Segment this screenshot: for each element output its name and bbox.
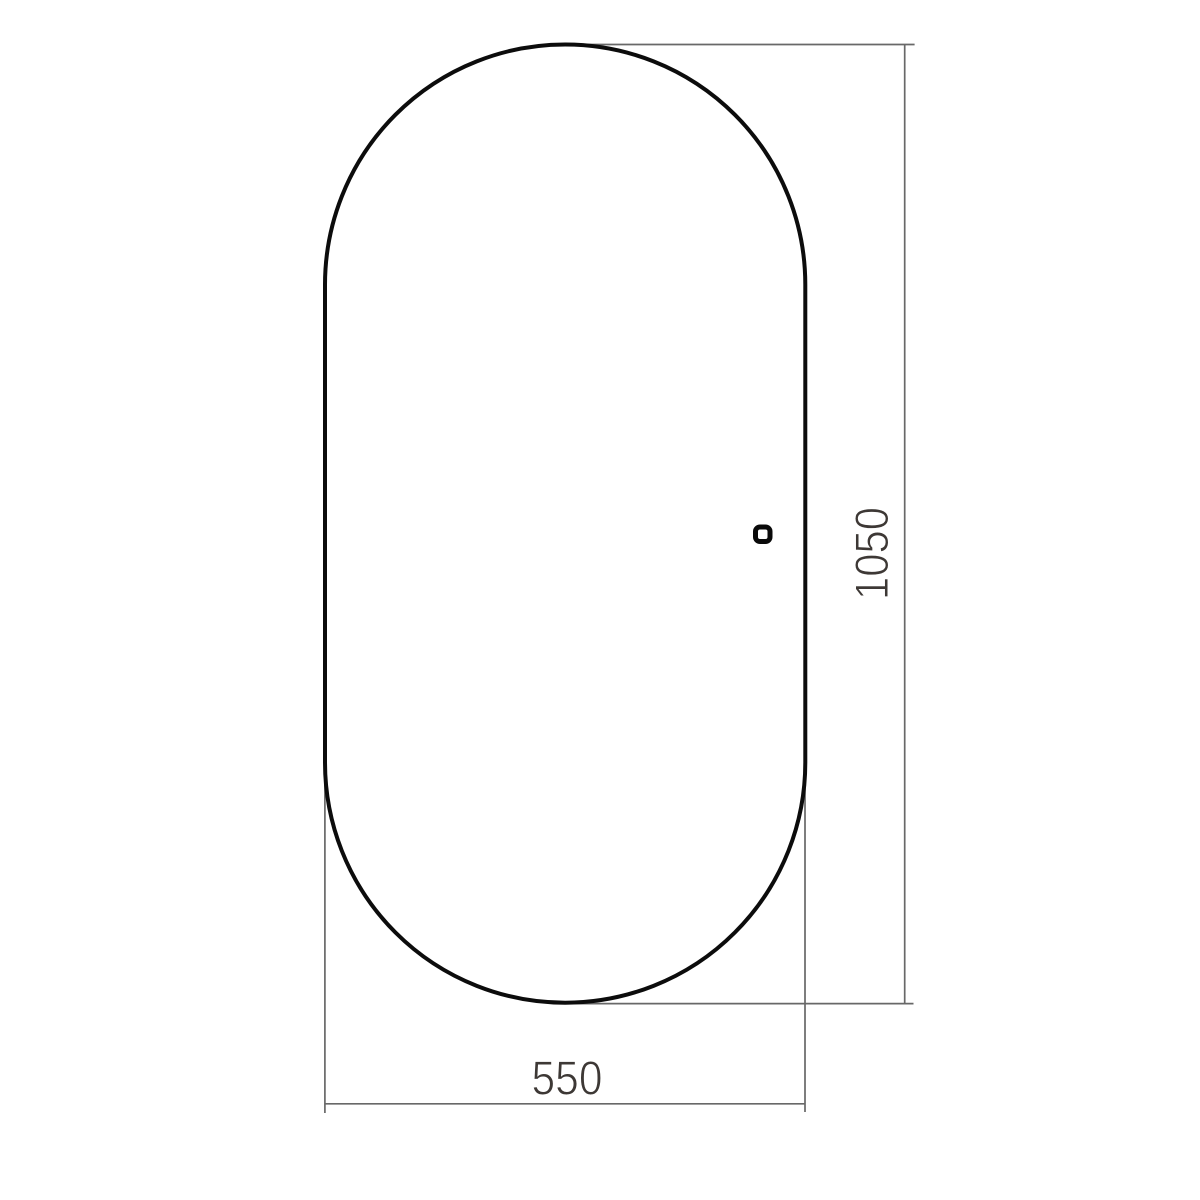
svg-text:1050: 1050	[845, 507, 898, 600]
svg-text:550: 550	[532, 1053, 603, 1106]
